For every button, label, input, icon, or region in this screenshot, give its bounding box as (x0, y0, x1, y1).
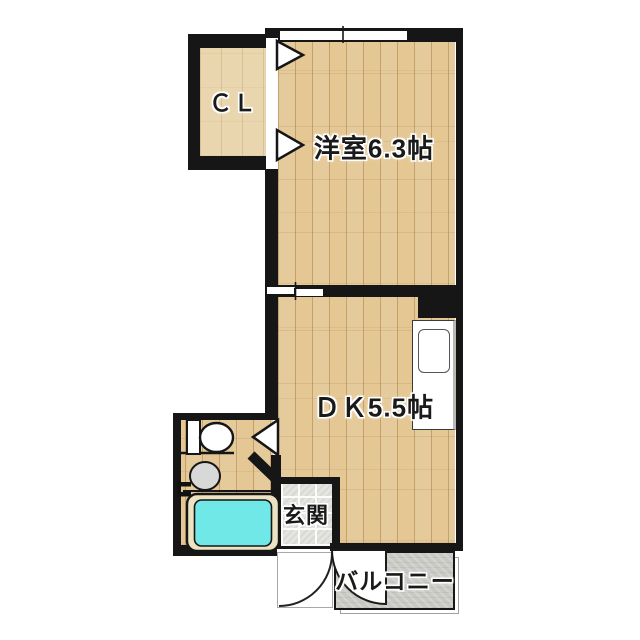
entrance-door-swing-arc (279, 553, 332, 606)
entrance-label: 玄関 (283, 498, 329, 530)
toilet-tank (187, 420, 200, 454)
balcony-label: バルコニー (335, 562, 455, 596)
toilet-door-icon (253, 420, 278, 455)
floor-plan: ＣＬ 洋室6.3帖 ＤＫ5.5帖 玄関 バルコニー (0, 0, 640, 640)
closet-door-icon-top (277, 41, 303, 69)
bathtub-water (195, 500, 272, 546)
closet-door-icon-bottom (277, 130, 303, 160)
closet-label: ＣＬ (209, 84, 257, 118)
fixtures-layer (0, 0, 640, 640)
toilet-bowl (200, 423, 233, 452)
washbasin (190, 462, 220, 490)
diagonal-wall (251, 455, 278, 481)
dk-label: ＤＫ5.5帖 (314, 388, 434, 425)
bath-faucet-body (177, 481, 181, 497)
western-room-label: 洋室6.3帖 (314, 129, 434, 166)
